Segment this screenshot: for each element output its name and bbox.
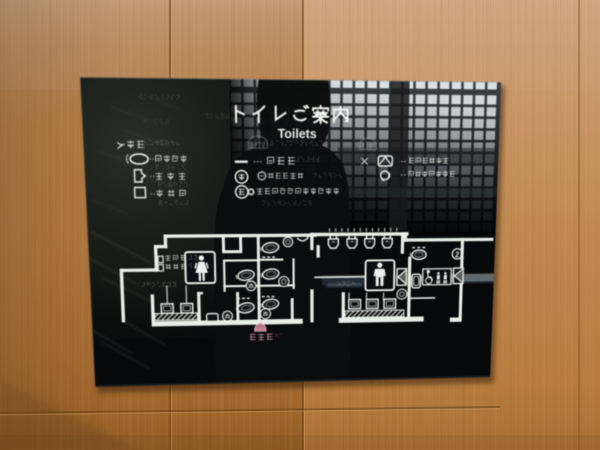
svg-text:2: 2: [455, 250, 460, 259]
svg-text:Toilets: Toilets: [278, 127, 317, 141]
